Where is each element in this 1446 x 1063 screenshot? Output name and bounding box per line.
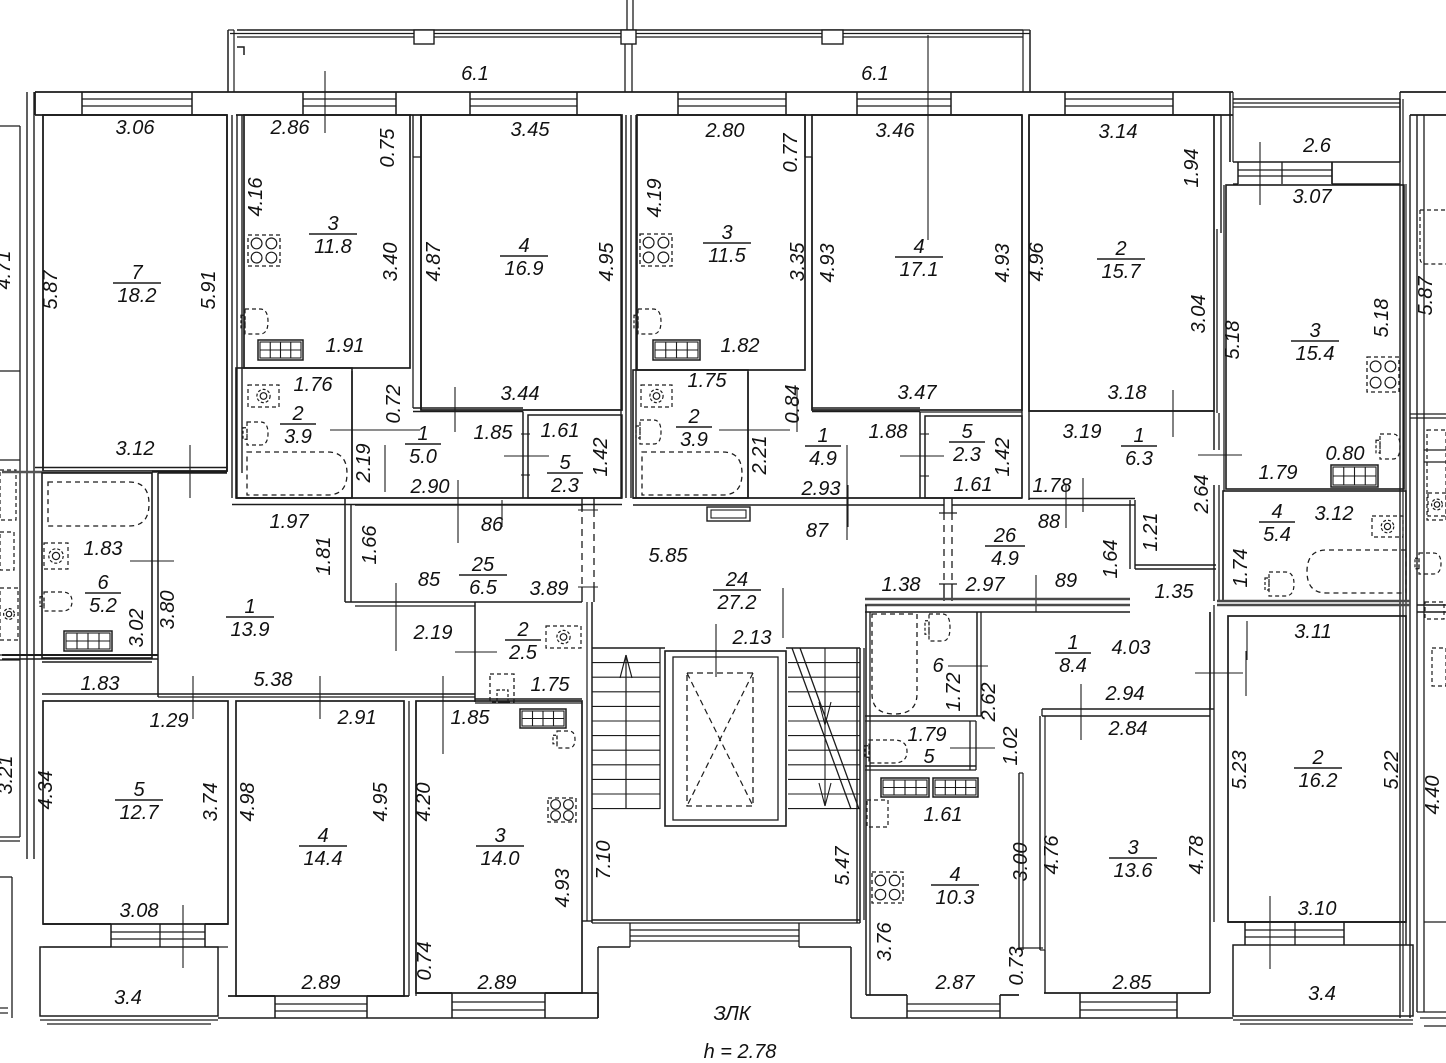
svg-text:4: 4 xyxy=(949,864,960,886)
svg-text:3: 3 xyxy=(721,222,732,244)
svg-text:87: 87 xyxy=(806,520,829,542)
svg-text:14.4: 14.4 xyxy=(304,848,343,870)
svg-text:2.89: 2.89 xyxy=(301,972,341,994)
svg-text:3.11: 3.11 xyxy=(1294,621,1331,643)
svg-text:ЗЛК: ЗЛК xyxy=(713,1003,751,1025)
svg-text:3: 3 xyxy=(494,825,505,847)
svg-text:2.89: 2.89 xyxy=(477,972,517,994)
svg-text:1.21: 1.21 xyxy=(1140,513,1162,552)
svg-text:13.9: 13.9 xyxy=(231,619,270,641)
svg-text:3.47: 3.47 xyxy=(898,382,938,404)
svg-text:3.80: 3.80 xyxy=(157,591,179,630)
svg-text:1: 1 xyxy=(1067,632,1078,654)
svg-text:2.94: 2.94 xyxy=(1105,683,1145,705)
svg-text:1.75: 1.75 xyxy=(688,370,728,392)
svg-text:4: 4 xyxy=(518,235,529,257)
svg-text:85: 85 xyxy=(418,569,441,591)
svg-text:1.35: 1.35 xyxy=(1155,581,1195,603)
svg-text:4.03: 4.03 xyxy=(1112,637,1151,659)
svg-text:2: 2 xyxy=(516,619,528,641)
svg-text:5.87: 5.87 xyxy=(1415,276,1437,316)
svg-text:4.93: 4.93 xyxy=(992,244,1014,283)
svg-text:13.6: 13.6 xyxy=(1114,860,1154,882)
svg-text:6.5: 6.5 xyxy=(469,577,498,599)
svg-text:4.93: 4.93 xyxy=(817,244,839,283)
svg-text:1.97: 1.97 xyxy=(270,511,310,533)
svg-text:1.75: 1.75 xyxy=(531,674,571,696)
svg-text:1.76: 1.76 xyxy=(294,374,334,396)
svg-text:2.6: 2.6 xyxy=(1302,135,1332,157)
svg-text:3.74: 3.74 xyxy=(200,783,222,822)
svg-text:2.80: 2.80 xyxy=(705,120,745,142)
svg-text:1.72: 1.72 xyxy=(943,673,965,712)
svg-text:3.12: 3.12 xyxy=(1315,503,1354,525)
svg-text:1.79: 1.79 xyxy=(908,724,947,746)
svg-text:16.9: 16.9 xyxy=(505,258,544,280)
svg-text:1.61: 1.61 xyxy=(954,474,993,496)
svg-text:1.91: 1.91 xyxy=(326,335,365,357)
svg-text:4.9: 4.9 xyxy=(809,448,837,470)
svg-text:4.76: 4.76 xyxy=(1041,835,1063,875)
svg-text:1: 1 xyxy=(1133,425,1144,447)
svg-text:1: 1 xyxy=(244,596,255,618)
svg-text:1.94: 1.94 xyxy=(1181,149,1203,188)
svg-text:4.95: 4.95 xyxy=(370,782,392,822)
svg-text:4.19: 4.19 xyxy=(644,179,666,218)
svg-text:26: 26 xyxy=(993,525,1017,547)
svg-text:1.29: 1.29 xyxy=(150,710,189,732)
svg-text:4.40: 4.40 xyxy=(1422,776,1444,815)
svg-text:3.44: 3.44 xyxy=(501,383,540,405)
svg-text:5.4: 5.4 xyxy=(1263,524,1291,546)
svg-text:27.2: 27.2 xyxy=(717,592,757,614)
svg-text:2: 2 xyxy=(1114,238,1126,260)
svg-text:2.84: 2.84 xyxy=(1108,718,1148,740)
svg-text:3: 3 xyxy=(1127,837,1138,859)
svg-text:10.3: 10.3 xyxy=(936,887,975,909)
svg-text:14.0: 14.0 xyxy=(481,848,520,870)
svg-text:6.1: 6.1 xyxy=(461,63,489,85)
svg-text:2.62: 2.62 xyxy=(978,683,1000,723)
svg-text:24: 24 xyxy=(725,569,748,591)
svg-text:3.9: 3.9 xyxy=(680,429,708,451)
svg-text:0.80: 0.80 xyxy=(1326,443,1365,465)
svg-text:3.35: 3.35 xyxy=(787,242,809,282)
svg-text:0.72: 0.72 xyxy=(383,385,405,424)
svg-text:1.38: 1.38 xyxy=(882,574,921,596)
svg-text:5.38: 5.38 xyxy=(254,669,293,691)
svg-text:2: 2 xyxy=(291,403,303,425)
svg-text:4.87: 4.87 xyxy=(423,242,445,282)
svg-text:1.83: 1.83 xyxy=(84,538,123,560)
svg-text:4.95: 4.95 xyxy=(596,242,618,282)
svg-text:5.47: 5.47 xyxy=(832,846,854,886)
svg-text:16.2: 16.2 xyxy=(1299,770,1338,792)
svg-text:17.1: 17.1 xyxy=(900,259,939,281)
svg-text:2.85: 2.85 xyxy=(1112,972,1153,994)
svg-text:2.93: 2.93 xyxy=(801,478,841,500)
svg-text:5.22: 5.22 xyxy=(1381,751,1403,790)
svg-text:1.85: 1.85 xyxy=(474,422,514,444)
svg-text:1.42: 1.42 xyxy=(590,438,612,477)
svg-text:5.0: 5.0 xyxy=(409,446,437,468)
svg-text:6.3: 6.3 xyxy=(1125,448,1153,470)
svg-text:3.14: 3.14 xyxy=(1099,121,1138,143)
svg-text:3.76: 3.76 xyxy=(874,922,896,962)
svg-text:7: 7 xyxy=(131,262,143,284)
svg-text:1.85: 1.85 xyxy=(451,707,491,729)
svg-text:2.21: 2.21 xyxy=(749,436,771,476)
svg-text:4.71: 4.71 xyxy=(0,251,15,290)
svg-text:2.86: 2.86 xyxy=(270,117,311,139)
svg-text:5.85: 5.85 xyxy=(649,545,689,567)
svg-text:h = 2.78: h = 2.78 xyxy=(704,1041,777,1063)
svg-text:4: 4 xyxy=(317,825,328,847)
svg-text:5.87: 5.87 xyxy=(40,270,62,310)
svg-text:3.21: 3.21 xyxy=(0,756,17,795)
svg-text:15.7: 15.7 xyxy=(1102,261,1142,283)
svg-text:4.34: 4.34 xyxy=(35,771,57,810)
svg-text:3.89: 3.89 xyxy=(530,578,569,600)
svg-text:2.97: 2.97 xyxy=(965,574,1006,596)
svg-text:3.02: 3.02 xyxy=(126,609,148,648)
svg-text:0.75: 0.75 xyxy=(377,128,399,168)
svg-text:1.81: 1.81 xyxy=(313,537,335,576)
svg-text:1.42: 1.42 xyxy=(992,438,1014,477)
svg-text:2: 2 xyxy=(687,406,699,428)
svg-text:2.5: 2.5 xyxy=(508,642,538,664)
svg-text:86: 86 xyxy=(481,514,504,536)
svg-text:3.08: 3.08 xyxy=(120,900,159,922)
svg-text:3.40: 3.40 xyxy=(380,243,402,282)
svg-text:0.74: 0.74 xyxy=(414,942,436,981)
svg-text:5.18: 5.18 xyxy=(1222,321,1244,360)
svg-text:11.5: 11.5 xyxy=(708,245,746,267)
svg-text:4: 4 xyxy=(913,236,924,258)
svg-text:4.96: 4.96 xyxy=(1026,242,1048,282)
svg-text:1.61: 1.61 xyxy=(541,420,580,442)
svg-text:15.4: 15.4 xyxy=(1296,343,1335,365)
svg-text:12.7: 12.7 xyxy=(120,802,160,824)
svg-text:2.91: 2.91 xyxy=(337,707,377,729)
svg-text:3.18: 3.18 xyxy=(1108,382,1147,404)
svg-text:3.4: 3.4 xyxy=(1308,983,1336,1005)
svg-text:4: 4 xyxy=(1271,501,1282,523)
svg-text:2.19: 2.19 xyxy=(413,622,453,644)
svg-text:1.02: 1.02 xyxy=(1000,727,1022,766)
svg-text:2.87: 2.87 xyxy=(935,972,976,994)
svg-text:25: 25 xyxy=(471,554,495,576)
svg-text:3.07: 3.07 xyxy=(1293,186,1333,208)
svg-text:0.73: 0.73 xyxy=(1006,947,1028,986)
svg-text:3.12: 3.12 xyxy=(116,438,155,460)
svg-text:3.00: 3.00 xyxy=(1010,843,1032,882)
svg-text:1.83: 1.83 xyxy=(81,673,120,695)
svg-text:6: 6 xyxy=(97,572,109,594)
svg-text:5: 5 xyxy=(961,421,973,443)
svg-text:4.16: 4.16 xyxy=(245,177,267,217)
svg-text:1.74: 1.74 xyxy=(1230,549,1252,588)
svg-text:3.10: 3.10 xyxy=(1298,898,1337,920)
svg-text:1: 1 xyxy=(817,425,828,447)
svg-text:4.98: 4.98 xyxy=(237,783,259,822)
svg-text:3: 3 xyxy=(1309,320,1320,342)
svg-text:3.46: 3.46 xyxy=(876,120,916,142)
svg-text:1.64: 1.64 xyxy=(1100,540,1122,579)
svg-text:7.10: 7.10 xyxy=(593,841,615,880)
svg-text:2.3: 2.3 xyxy=(550,475,579,497)
svg-text:5: 5 xyxy=(133,779,145,801)
svg-text:3.4: 3.4 xyxy=(114,987,142,1009)
svg-text:2.90: 2.90 xyxy=(410,476,450,498)
svg-text:5: 5 xyxy=(923,746,935,768)
svg-text:0.84: 0.84 xyxy=(782,385,804,424)
svg-text:89: 89 xyxy=(1055,570,1077,592)
svg-text:6.1: 6.1 xyxy=(861,63,889,85)
svg-text:2.13: 2.13 xyxy=(732,627,772,649)
svg-text:2: 2 xyxy=(1311,747,1323,769)
svg-text:3.19: 3.19 xyxy=(1063,421,1102,443)
svg-text:8.4: 8.4 xyxy=(1059,655,1087,677)
svg-text:5.18: 5.18 xyxy=(1371,299,1393,338)
svg-text:2.19: 2.19 xyxy=(353,444,375,484)
svg-text:3: 3 xyxy=(327,213,338,235)
svg-text:0.77: 0.77 xyxy=(780,133,802,173)
svg-text:1.88: 1.88 xyxy=(869,421,908,443)
svg-text:2.3: 2.3 xyxy=(952,444,981,466)
svg-text:3.04: 3.04 xyxy=(1188,295,1210,334)
svg-text:5.2: 5.2 xyxy=(89,595,117,617)
svg-text:2.64: 2.64 xyxy=(1191,475,1213,515)
svg-text:5: 5 xyxy=(559,452,571,474)
svg-text:3.06: 3.06 xyxy=(116,117,156,139)
svg-text:1.61: 1.61 xyxy=(924,804,963,826)
svg-text:4.78: 4.78 xyxy=(1186,836,1208,875)
svg-text:3.9: 3.9 xyxy=(284,426,312,448)
svg-text:4.9: 4.9 xyxy=(991,548,1019,570)
svg-text:1.66: 1.66 xyxy=(359,525,381,565)
svg-text:1.79: 1.79 xyxy=(1259,462,1298,484)
svg-text:3.45: 3.45 xyxy=(511,119,551,141)
svg-text:5.23: 5.23 xyxy=(1229,751,1251,790)
svg-text:4.20: 4.20 xyxy=(413,783,435,822)
svg-text:11.8: 11.8 xyxy=(314,236,351,258)
svg-text:5.91: 5.91 xyxy=(198,271,220,310)
svg-text:88: 88 xyxy=(1038,511,1060,533)
svg-text:1.82: 1.82 xyxy=(721,335,760,357)
svg-text:18.2: 18.2 xyxy=(118,285,157,307)
svg-text:1: 1 xyxy=(417,423,428,445)
svg-text:4.93: 4.93 xyxy=(552,869,574,908)
